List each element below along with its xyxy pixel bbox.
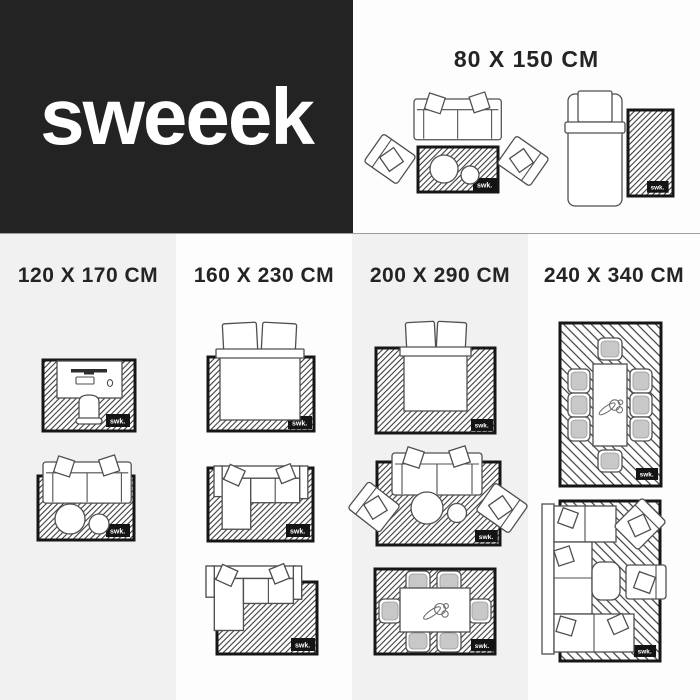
illustration-lounge-240x340 bbox=[538, 496, 670, 668]
dining-chair bbox=[568, 369, 590, 393]
swk-badge bbox=[647, 181, 669, 193]
pillow bbox=[436, 321, 466, 349]
illustration-bed-160x230 bbox=[206, 320, 318, 435]
sectional-back bbox=[542, 504, 554, 654]
dining-chair bbox=[406, 630, 430, 652]
mattress bbox=[220, 356, 300, 420]
desk-chair bbox=[79, 395, 99, 420]
rug-size-guide-infographic: swk. bbox=[0, 0, 700, 700]
dining-chair bbox=[630, 393, 652, 417]
monitor-stand bbox=[84, 373, 94, 375]
dining-chair bbox=[568, 417, 590, 441]
desk-chair-base bbox=[76, 418, 102, 424]
coffee-table-small bbox=[461, 166, 479, 184]
dining-chair bbox=[630, 417, 652, 441]
size-heading-200x290: 200 X 290 CM bbox=[352, 264, 528, 288]
illustration-corner-sofa-160x230 bbox=[206, 464, 318, 546]
pillow bbox=[405, 321, 435, 349]
illustration-dining-200x290 bbox=[373, 566, 500, 659]
dining-chair bbox=[630, 369, 652, 393]
sofa bbox=[414, 92, 501, 140]
desk bbox=[57, 361, 122, 398]
coffee-table-small bbox=[448, 504, 467, 523]
illustration-bed-200x290 bbox=[373, 318, 500, 437]
pillow bbox=[578, 91, 612, 122]
armchair-right bbox=[626, 565, 666, 599]
coffee-table-small bbox=[89, 514, 109, 534]
illustration-single-bed-80x150 bbox=[560, 88, 680, 213]
illustration-corner-sofa-offset-160x230 bbox=[204, 563, 326, 661]
coffee-table-large bbox=[55, 504, 85, 534]
pillow bbox=[222, 322, 257, 352]
dining-chair bbox=[437, 630, 461, 652]
bed-band bbox=[400, 347, 471, 356]
illustration-dining-240x340 bbox=[556, 318, 668, 490]
illustration-living-room-80x150 bbox=[366, 93, 546, 208]
swk-badge bbox=[106, 524, 130, 537]
size-heading-240x340: 240 X 340 CM bbox=[528, 264, 700, 288]
dining-chair bbox=[598, 338, 622, 360]
swk-badge bbox=[471, 419, 493, 431]
bed-band bbox=[216, 349, 304, 358]
swk-badge bbox=[291, 638, 315, 651]
coffee-table bbox=[592, 562, 620, 600]
sofa bbox=[43, 455, 131, 503]
size-heading-120x170: 120 X 170 CM bbox=[0, 264, 176, 288]
swk-badge bbox=[634, 645, 656, 657]
mattress bbox=[404, 354, 467, 411]
swk-badge bbox=[471, 639, 494, 651]
pillow bbox=[261, 322, 296, 352]
coffee-table-large bbox=[430, 155, 458, 183]
size-heading-160x230: 160 X 230 CM bbox=[176, 264, 352, 288]
armchair-right bbox=[497, 136, 549, 187]
brand-logo-panel: sweeek bbox=[0, 0, 353, 233]
dining-chair bbox=[598, 450, 622, 472]
swk-badge bbox=[286, 524, 310, 537]
coffee-table-large bbox=[411, 492, 443, 524]
bed-band bbox=[565, 122, 625, 133]
swk-badge bbox=[636, 468, 658, 480]
illustration-sofa-120x170 bbox=[36, 456, 140, 546]
swk-badge bbox=[106, 414, 130, 427]
brand-logo-text: sweeek bbox=[40, 77, 313, 157]
dining-chair bbox=[379, 599, 401, 623]
illustration-desk-120x170 bbox=[38, 356, 142, 436]
swk-badge bbox=[475, 530, 498, 542]
illustration-living-room-200x290 bbox=[356, 450, 521, 550]
dining-chair bbox=[568, 393, 590, 417]
size-heading-80x150: 80 X 150 CM bbox=[353, 46, 700, 73]
cushion bbox=[556, 616, 576, 636]
armchair-left bbox=[364, 134, 416, 185]
sofa bbox=[392, 446, 482, 495]
monitor bbox=[71, 369, 107, 373]
dining-chair bbox=[469, 599, 491, 623]
